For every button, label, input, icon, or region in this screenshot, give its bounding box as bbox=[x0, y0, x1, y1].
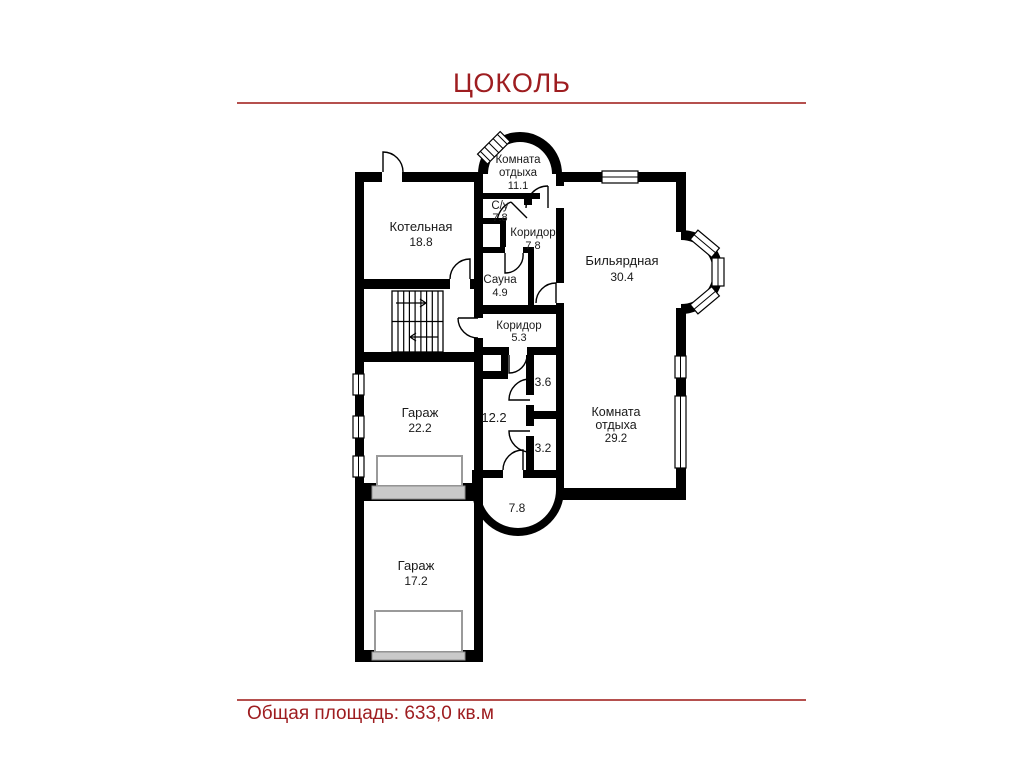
room-label-komnata-otdyha-niz: отдыха bbox=[595, 418, 636, 432]
room-label-komnata-otdyha-niz: Комната bbox=[592, 405, 641, 419]
room-label-garazh-bolshoy: Гараж bbox=[402, 405, 439, 420]
room-area-komnata-otdyha-verh: 11.1 bbox=[508, 180, 529, 192]
room-area-su: 7.8 bbox=[492, 212, 507, 224]
room-label-komnata-otdyha-verh: Комната bbox=[495, 154, 541, 166]
room-label-kotelnaya: Котельная bbox=[390, 219, 453, 234]
room-label-komnata-otdyha-verh: отдыха bbox=[499, 167, 538, 179]
room-label-sauna: Сауна bbox=[483, 274, 517, 286]
room-label-bilyardnaya: Бильярдная bbox=[585, 253, 658, 268]
room-label-garazh-malyy: Гараж bbox=[398, 558, 435, 573]
room-labels: Комната отдыха 11.1 С/у 7.8 Коридор 7.8 … bbox=[390, 154, 659, 588]
window bbox=[353, 456, 364, 477]
room-area-koridor-centr: 5.3 bbox=[511, 332, 526, 344]
bay-window bbox=[712, 258, 724, 286]
window bbox=[602, 171, 638, 183]
total-area-text: Общая площадь: 633,0 кв.м bbox=[247, 703, 494, 725]
room-label-koridor-centr: Коридор bbox=[496, 320, 541, 332]
garage-door-opening bbox=[372, 486, 465, 499]
room-area-garazh-bolshoy: 22.2 bbox=[408, 421, 432, 435]
room-area-sauna: 4.9 bbox=[492, 287, 507, 299]
footer-divider bbox=[237, 699, 806, 701]
room-area-komnata-otdyha-niz: 29.2 bbox=[605, 433, 627, 445]
garage-door-opening bbox=[372, 652, 465, 660]
garage-door-panel bbox=[375, 611, 462, 652]
bay-window bbox=[690, 287, 719, 314]
window bbox=[353, 374, 364, 395]
garage-door-panel bbox=[377, 456, 462, 486]
room-area-7-8: 7.8 bbox=[509, 501, 526, 515]
floor-plan-drawing: Комната отдыха 11.1 С/у 7.8 Коридор 7.8 … bbox=[0, 0, 1024, 768]
room-area-kotelnaya: 18.8 bbox=[409, 235, 433, 249]
window bbox=[353, 416, 364, 438]
room-area-12-2: 12.2 bbox=[481, 410, 506, 425]
room-area-koridor-verh: 7.8 bbox=[525, 240, 540, 252]
staircase bbox=[392, 291, 443, 352]
window bbox=[675, 396, 686, 468]
room-label-su: С/у bbox=[491, 200, 509, 212]
window bbox=[675, 356, 686, 378]
floor-plan-page: ЦОКОЛЬ bbox=[0, 0, 1024, 768]
room-area-3-6: 3.6 bbox=[535, 375, 552, 389]
room-area-bilyardnaya: 30.4 bbox=[610, 270, 634, 284]
room-label-koridor-verh: Коридор bbox=[510, 227, 555, 239]
bay-window bbox=[690, 230, 719, 257]
room-area-garazh-malyy: 17.2 bbox=[404, 574, 428, 588]
room-area-3-2: 3.2 bbox=[535, 441, 552, 455]
